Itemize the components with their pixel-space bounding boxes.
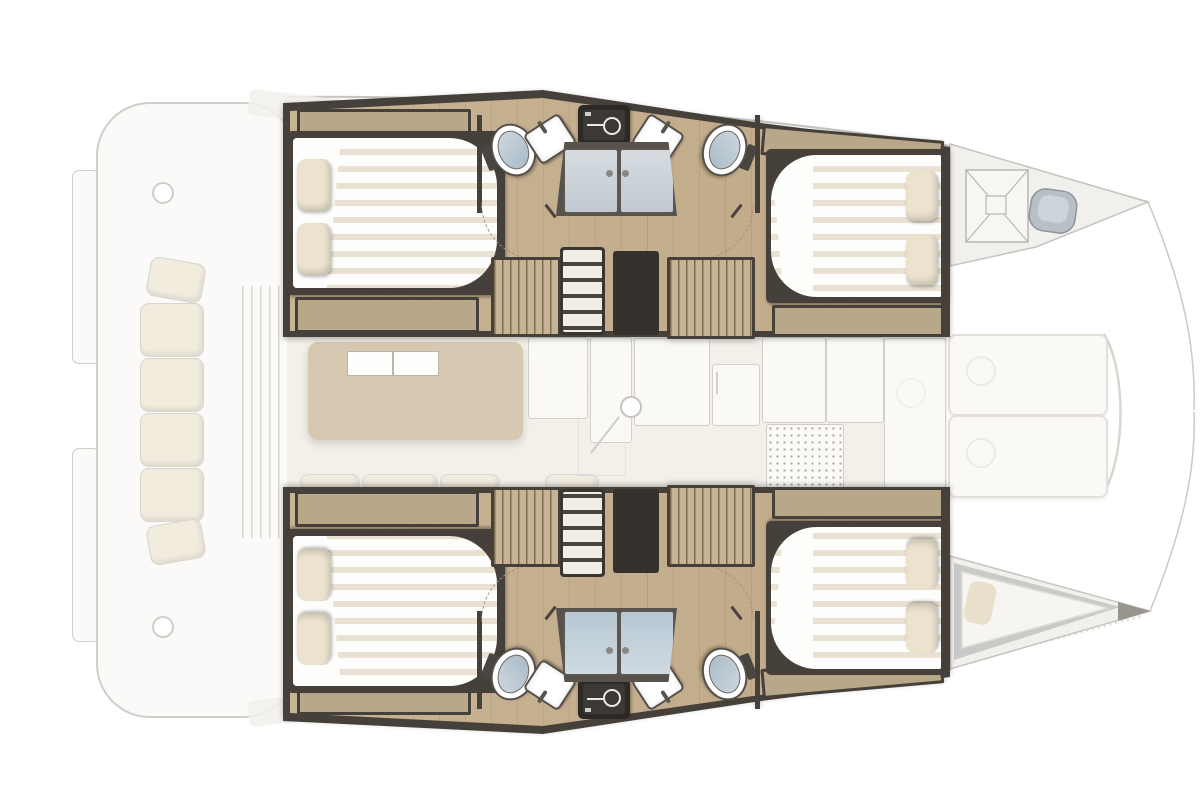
shower-stall: [556, 142, 677, 216]
pillow: [297, 613, 331, 665]
bow-bulkhead: [941, 149, 950, 337]
bow-bulkhead: [941, 487, 950, 675]
wardrobe: [491, 487, 561, 567]
starboard-hull: [283, 487, 950, 739]
table-leaf: [347, 351, 393, 376]
aft-cabin-bench: [295, 491, 479, 527]
blanket-fold: [771, 155, 813, 297]
port-hull: [283, 85, 950, 337]
forward-cabin-bed: [766, 521, 948, 675]
bathroom-wall: [755, 115, 760, 213]
wardrobe: [667, 485, 755, 567]
aft-cabin-bed: [287, 529, 505, 693]
pillow: [906, 171, 938, 221]
pillow: [906, 235, 938, 285]
pillow: [297, 549, 331, 601]
bathroom-wall: [755, 611, 760, 709]
companionway-stairs: [560, 247, 605, 335]
galley-sink-unit: [884, 338, 946, 488]
bathroom-wall: [477, 611, 482, 709]
shower-stall: [556, 608, 677, 682]
aft-cabin-bed: [287, 131, 505, 295]
forepeak-hatch-center: [986, 196, 1006, 214]
pad-logo: [966, 356, 996, 386]
catamaran-floor-plan: [0, 0, 1200, 800]
rigging-line-port: [1148, 202, 1194, 410]
forward-cabin-bed: [766, 149, 948, 303]
bow-seat: [1027, 187, 1078, 235]
forward-cabin-bench: [772, 487, 950, 519]
aft-cabin-bench: [295, 297, 479, 333]
rigging-line-starboard: [1150, 412, 1194, 611]
equipment-panel: [578, 105, 630, 145]
equipment-panel: [578, 679, 630, 719]
stove: [766, 424, 844, 488]
winch-port: [152, 182, 174, 204]
forward-cabin-bench: [772, 305, 950, 337]
winch-starboard: [152, 616, 174, 638]
galley-counter: [826, 337, 884, 423]
blanket-fold: [771, 527, 813, 669]
pad-logo: [966, 438, 996, 468]
pillow: [297, 159, 331, 211]
galley-sink-basin: [896, 378, 926, 408]
cockpit-bench-cushion: [140, 358, 204, 412]
fridge-handle: [716, 372, 718, 394]
sliding-door: [242, 286, 288, 538]
table-leaf: [393, 351, 439, 376]
cockpit-bench-cushion: [140, 303, 204, 357]
bathroom-wall: [477, 115, 482, 213]
cockpit-bench-cushion: [140, 413, 204, 467]
fridge: [712, 364, 760, 426]
pillow: [906, 539, 938, 589]
nav-station-unit: [634, 338, 710, 426]
companionway-stairs: [560, 489, 605, 577]
galley-counter: [762, 337, 826, 423]
pillow: [906, 603, 938, 653]
cabin-doorway: [613, 251, 659, 335]
mast-post: [620, 396, 642, 418]
cabin-doorway: [613, 489, 659, 573]
wardrobe: [491, 257, 561, 337]
pillow: [297, 223, 331, 275]
cockpit-bench-cushion: [140, 468, 204, 522]
nav-station-unit: [528, 337, 588, 419]
wardrobe: [667, 257, 755, 339]
